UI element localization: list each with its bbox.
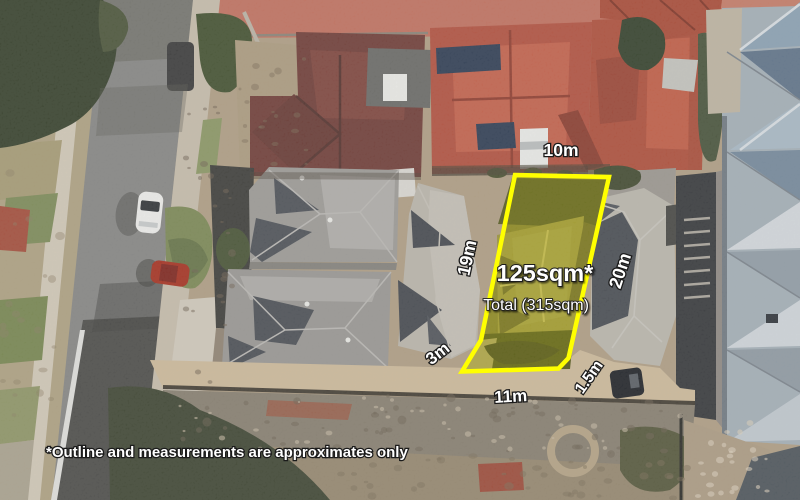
svg-text:*Outline and measurements are: *Outline and measurements are approximat…	[46, 444, 408, 461]
svg-text:125sqm*: 125sqm*	[497, 260, 595, 286]
svg-text:10m: 10m	[543, 140, 578, 160]
svg-text:11m: 11m	[494, 386, 528, 407]
svg-text:Total (315sqm): Total (315sqm)	[483, 297, 589, 314]
